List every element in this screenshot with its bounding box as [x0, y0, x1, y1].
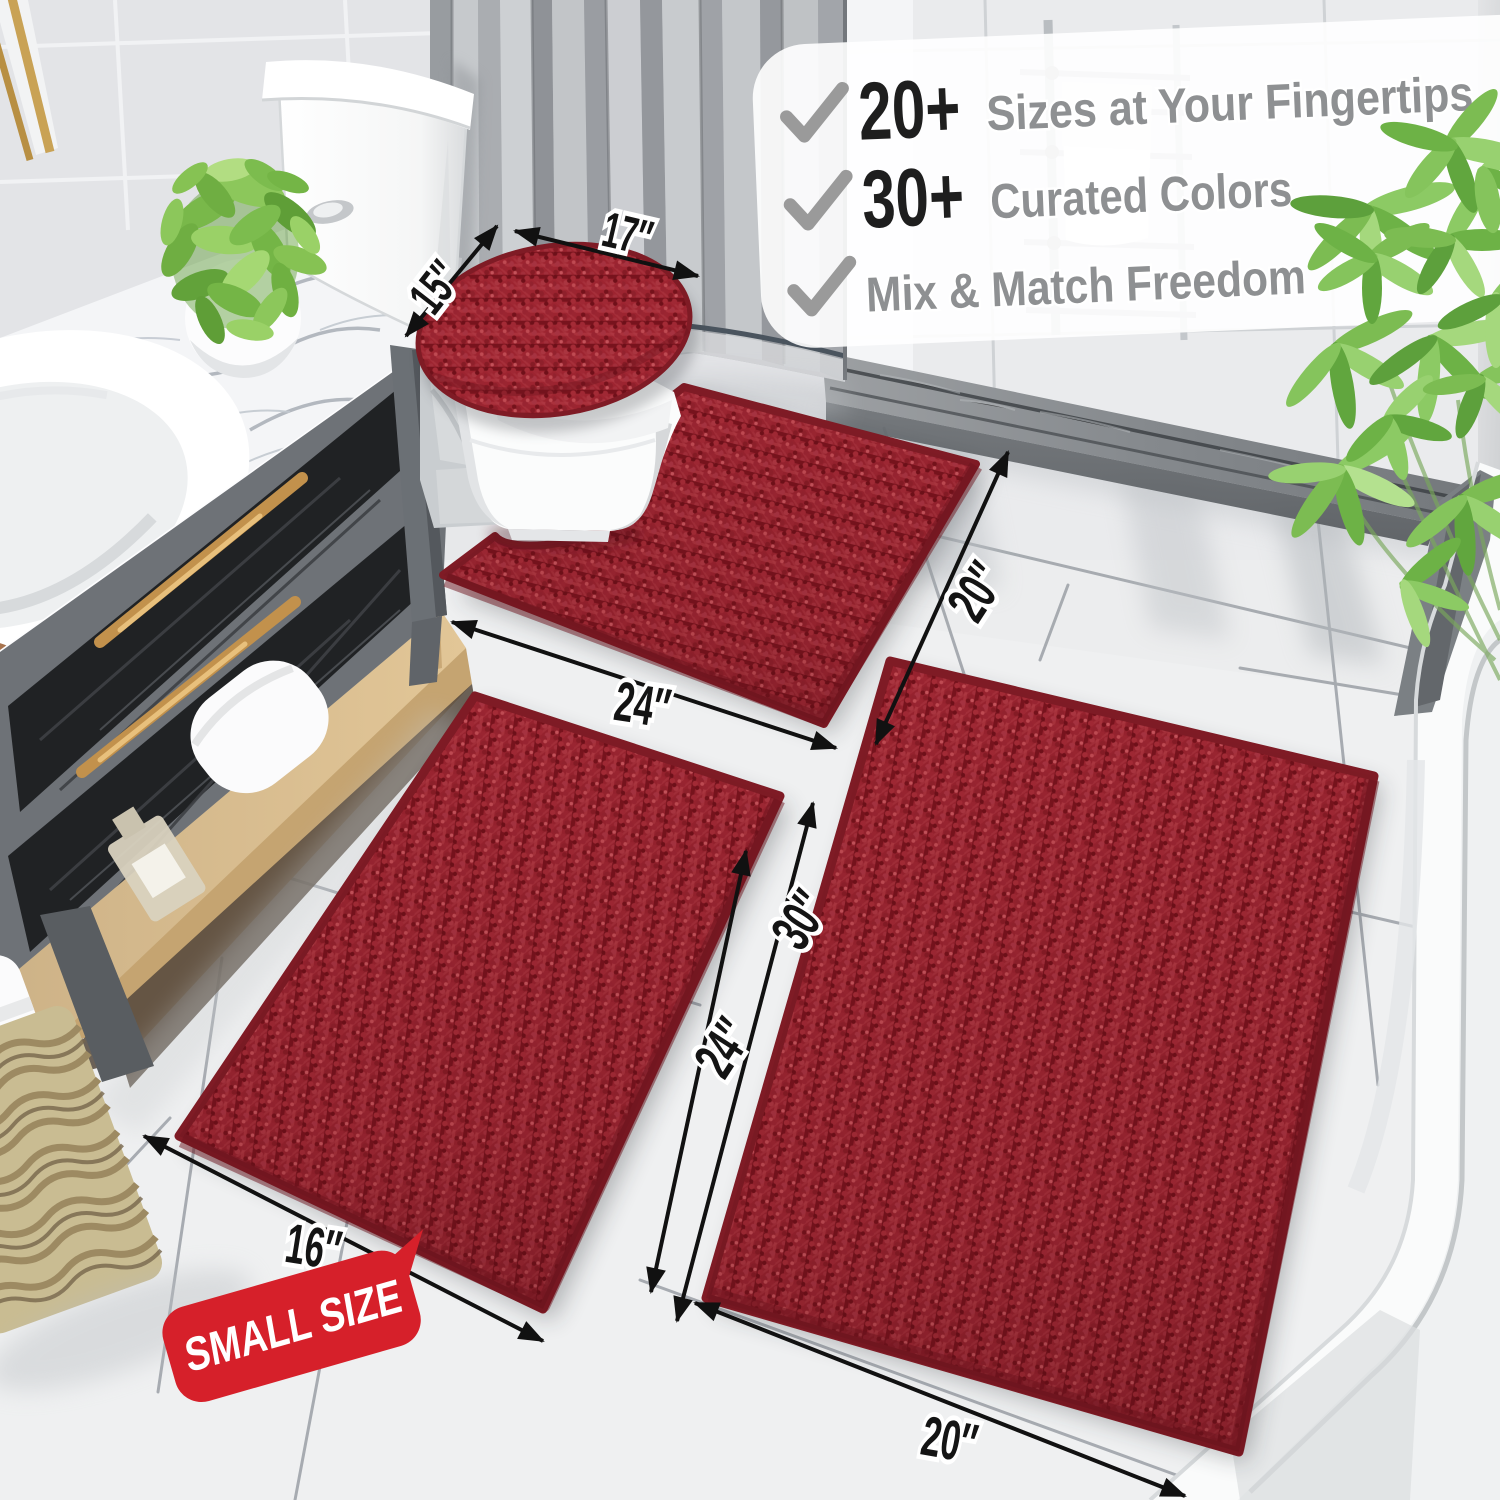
svg-text:30+: 30+: [860, 150, 966, 245]
svg-text:20″: 20″: [917, 1404, 982, 1475]
svg-text:24″: 24″: [610, 670, 674, 740]
svg-text:20+: 20+: [857, 63, 963, 158]
